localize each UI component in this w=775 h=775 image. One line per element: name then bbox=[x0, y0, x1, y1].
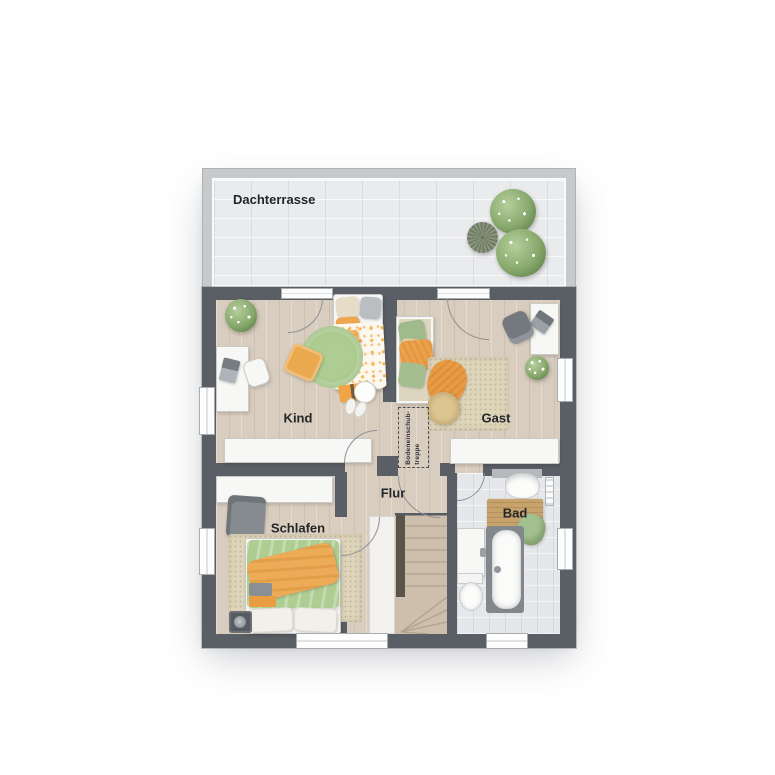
terrace-door-kind bbox=[281, 288, 333, 299]
label-schlafen: Schlafen bbox=[271, 521, 325, 536]
gast-sideboard bbox=[450, 438, 559, 464]
bad-towel-radiator bbox=[545, 477, 554, 506]
window-kind-left bbox=[199, 387, 215, 435]
kind-plant bbox=[225, 299, 257, 332]
terrace-plant-1 bbox=[490, 189, 536, 234]
window-bad-right bbox=[557, 528, 573, 570]
gast-pillow-green-2 bbox=[397, 361, 426, 388]
label-bad: Bad bbox=[503, 506, 528, 521]
attic-hatch: Bodeneinschub- treppe bbox=[398, 407, 429, 468]
gast-pouf bbox=[427, 392, 460, 425]
staircase bbox=[395, 513, 447, 634]
window-schlafen-bottom bbox=[296, 633, 388, 649]
bad-toilet-bowl bbox=[459, 582, 483, 611]
schlafen-bed-box-orange bbox=[249, 596, 276, 607]
window-bad-bottom bbox=[486, 633, 528, 649]
bad-bathtub-faucet bbox=[494, 566, 501, 573]
kind-flower-stool bbox=[354, 381, 376, 403]
wall-flur-bad bbox=[447, 473, 457, 634]
window-schlafen-left bbox=[199, 528, 215, 575]
label-dachterrasse: Dachterrasse bbox=[233, 192, 315, 207]
kind-bed-pillow-beige bbox=[335, 296, 360, 318]
wall-schlafen-flur-top bbox=[335, 472, 347, 517]
label-kind: Kind bbox=[284, 411, 313, 426]
schlafen-pillow-2 bbox=[293, 607, 337, 633]
terrace-plant-2 bbox=[467, 222, 498, 253]
schlafen-bed-box-gray bbox=[249, 583, 272, 596]
wall-stub-flur bbox=[377, 456, 398, 476]
schlafen-pillow-1 bbox=[249, 607, 293, 633]
attic-hatch-label: Bodeneinschub- treppe bbox=[405, 411, 423, 465]
window-gast-right bbox=[557, 358, 573, 402]
floor-plan-canvas: Dachterrasse Bodeneinschub- bbox=[0, 0, 775, 775]
terrace-plant-3 bbox=[496, 229, 546, 277]
schlafen-speaker-cone bbox=[234, 616, 246, 628]
kind-bed-pillow-gray bbox=[359, 296, 381, 319]
bad-sink bbox=[505, 473, 540, 499]
label-flur: Flur bbox=[381, 486, 406, 501]
wall-kind-flur bbox=[216, 463, 345, 476]
label-gast: Gast bbox=[482, 411, 511, 426]
schlafen-chair-clothes bbox=[226, 495, 267, 540]
gast-plant bbox=[525, 356, 549, 380]
terrace-door-gast bbox=[437, 288, 490, 299]
